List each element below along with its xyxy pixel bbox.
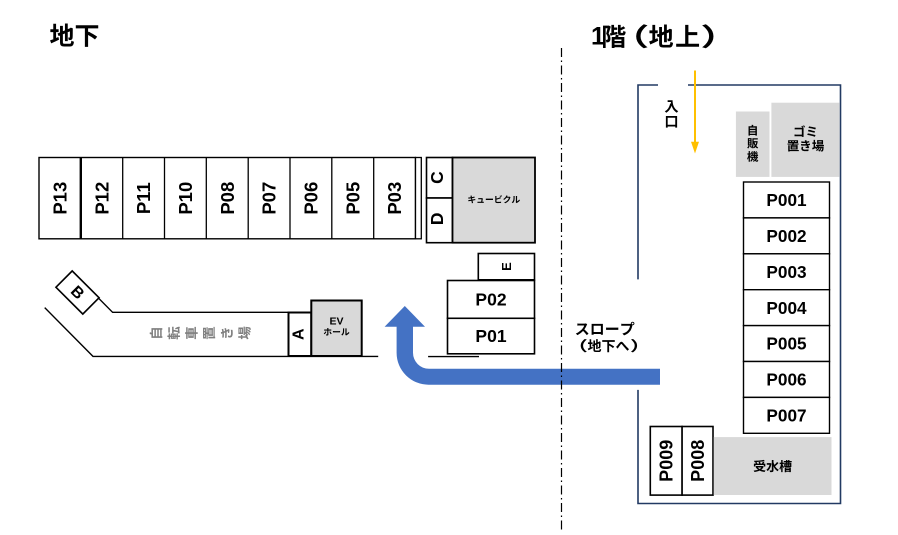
- svg-text:P01: P01: [475, 326, 506, 346]
- svg-text:P004: P004: [766, 298, 807, 318]
- svg-text:P002: P002: [766, 226, 806, 246]
- svg-text:A: A: [291, 328, 308, 340]
- svg-text:P02: P02: [475, 290, 506, 310]
- svg-text:P13: P13: [50, 182, 71, 215]
- svg-text:P006: P006: [766, 370, 806, 390]
- svg-text:P05: P05: [342, 182, 363, 215]
- svg-text:1: 1: [591, 23, 605, 51]
- svg-text:P11: P11: [133, 182, 154, 214]
- svg-text:P08: P08: [217, 182, 238, 215]
- svg-text:P001: P001: [766, 190, 807, 210]
- svg-text:P007: P007: [766, 406, 806, 426]
- svg-text:P06: P06: [301, 182, 322, 215]
- svg-text:E: E: [499, 262, 514, 271]
- svg-text:P07: P07: [259, 182, 280, 215]
- svg-text:P03: P03: [384, 182, 405, 215]
- svg-text:D: D: [427, 212, 447, 225]
- svg-text:P10: P10: [175, 182, 196, 215]
- svg-text:P003: P003: [766, 262, 806, 282]
- svg-text:P009: P009: [657, 440, 677, 482]
- svg-text:P005: P005: [766, 334, 807, 354]
- svg-text:C: C: [427, 171, 447, 184]
- svg-text:EV: EV: [329, 316, 343, 328]
- svg-text:P12: P12: [91, 182, 112, 215]
- svg-text:P008: P008: [688, 440, 708, 482]
